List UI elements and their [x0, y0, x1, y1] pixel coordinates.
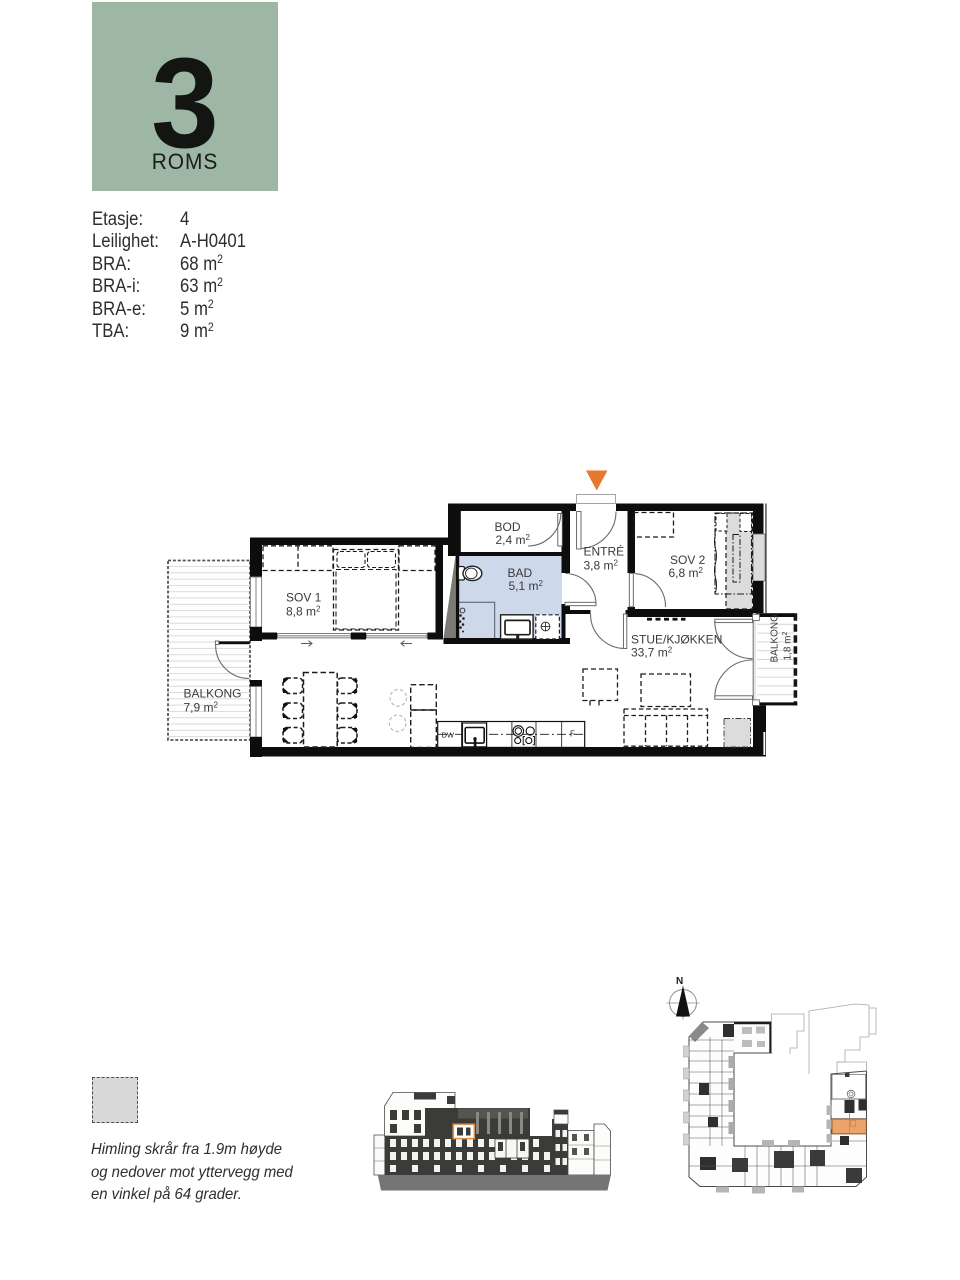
svg-text:N: N: [676, 976, 683, 987]
svg-text:BAD: BAD: [508, 566, 533, 580]
svg-text:8,8 m2: 8,8 m2: [286, 605, 321, 619]
svg-text:F: F: [570, 730, 575, 739]
svg-text:2,4 m2: 2,4 m2: [496, 533, 531, 547]
svg-text:33,7 m2: 33,7 m2: [631, 646, 673, 660]
svg-text:BOD: BOD: [495, 520, 521, 534]
svg-text:ENTRÉ: ENTRÉ: [584, 544, 625, 559]
svg-text:DW: DW: [442, 730, 455, 739]
svg-text:BALKONG: BALKONG: [770, 614, 781, 663]
svg-text:3,8 m2: 3,8 m2: [584, 559, 619, 573]
svg-text:5,1 m2: 5,1 m2: [509, 579, 544, 593]
svg-text:BALKONG: BALKONG: [184, 687, 242, 701]
svg-text:SOV 1: SOV 1: [286, 591, 322, 605]
svg-text:6,8 m2: 6,8 m2: [669, 566, 704, 580]
svg-text:SOV 2: SOV 2: [670, 553, 706, 567]
svg-text:STUE/KJØKKEN: STUE/KJØKKEN: [631, 633, 722, 647]
svg-text:1,8 m2: 1,8 m2: [782, 631, 794, 660]
svg-text:7,9 m2: 7,9 m2: [184, 701, 219, 715]
